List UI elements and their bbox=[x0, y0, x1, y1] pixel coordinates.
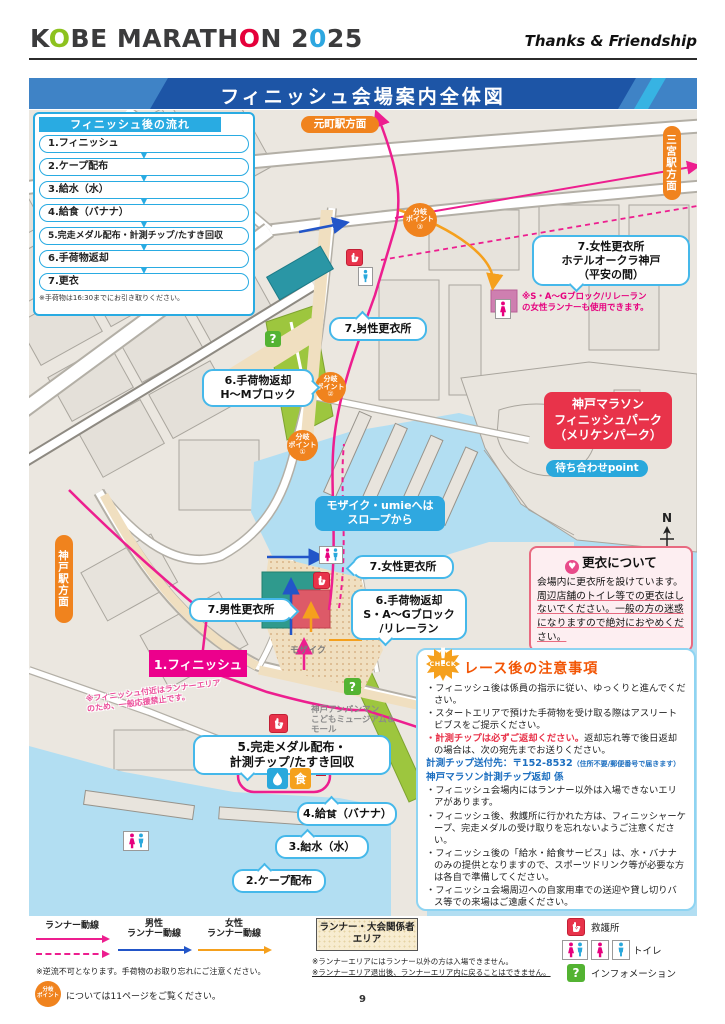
legend-male-route: 男性 ランナー動線 bbox=[118, 919, 190, 951]
anpanman-label: 神戸アンパンマン こどもミュージアム＆ モール bbox=[311, 705, 413, 736]
flow-step: 5.完走メダル配布・計測チップ/たすき回収 bbox=[39, 227, 249, 245]
runner-area-note1: ※ランナーエリアにはランナー以外の方は入場できません。 bbox=[312, 956, 562, 967]
logo-ring-blue: 0 bbox=[309, 24, 327, 53]
flow-panel-title: フィニッシュ後の流れ bbox=[39, 117, 221, 132]
legend-label: 救護所 bbox=[591, 920, 620, 934]
note-item: ・スタートエリアで預けた手荷物を受け取る際はアスリートビブスをご提示ください。 bbox=[426, 708, 686, 732]
callout-food: 4.給食（バナナ） bbox=[297, 802, 397, 826]
direction-label-kobe-station: 神戸駅方面 bbox=[55, 535, 73, 623]
page-number: 9 bbox=[0, 994, 725, 1005]
toilet-icon-male bbox=[358, 267, 373, 286]
meeting-point-label: 待ち合わせpoint bbox=[546, 460, 648, 477]
callout-baggage-hm: 6.手荷物返却 H～Mブロック bbox=[202, 369, 314, 407]
event-tagline: Thanks & Friendship bbox=[525, 32, 697, 50]
branch-point-label: 分岐 ポイント bbox=[289, 434, 317, 449]
branch-point-number: ① bbox=[299, 449, 305, 456]
information-icon: ? bbox=[344, 678, 361, 695]
direction-label-sannomiya: 三宮駅方面 bbox=[663, 126, 681, 200]
kobe-marathon-logo: KOBE MARATHON 2025 bbox=[30, 24, 363, 53]
note-item-red: ・計測チップは必ずご返却ください。 bbox=[426, 733, 584, 744]
hotel-note: ※S・A～Gブロック/リレーラン の女性ランナーも使用できます。 bbox=[522, 292, 698, 315]
post-race-notes-panel: ! CHECK レース後の注意事項 ・フィニッシュ後は係員の指示に従い、ゆっくり… bbox=[416, 648, 696, 911]
legend-label: 女性 ランナー動線 bbox=[198, 919, 270, 940]
logo-part: N 2 bbox=[260, 24, 309, 53]
direction-label-motomachi: 元町駅方面 bbox=[301, 116, 379, 133]
first-aid-icon bbox=[567, 918, 585, 936]
toilet-icon-pair bbox=[562, 940, 588, 960]
mosaic-umie-note: モザイク・umieへは スロープから bbox=[315, 496, 445, 531]
logo-part: BE MARATH bbox=[71, 24, 239, 53]
runner-area-note2: ※ランナーエリア退出後、ランナーエリア内に戻ることはできません。 bbox=[312, 967, 562, 978]
first-aid-icon bbox=[313, 572, 330, 589]
section-title-banner: フィニッシュ会場案内全体図 bbox=[29, 78, 697, 109]
changing-info-body-underlined: 周辺店舗のトイレ等での更衣はしないでください。一般の方の迷惑になりますので絶対に… bbox=[537, 591, 684, 643]
page-title: フィニッシュ会場案内全体図 bbox=[29, 82, 697, 109]
finish-park-label: 神戸マラソン フィニッシュパーク （メリケンパーク） bbox=[544, 392, 672, 449]
male-route-arrow bbox=[118, 949, 190, 951]
runner-route-arrow bbox=[36, 938, 108, 940]
guidebook-page: KOBE MARATHON 2025 Thanks & Friendship フ… bbox=[0, 0, 725, 1024]
food-station-icon: 食 bbox=[290, 768, 311, 789]
callout-cape: 2.ケープ配布 bbox=[232, 869, 326, 893]
callout-male-change-top: 7.男性更衣所 bbox=[329, 317, 427, 341]
first-aid-icon bbox=[269, 714, 288, 733]
changing-info-body: 会場内に更衣所を設けています。 bbox=[537, 577, 683, 588]
branch-point-1: 分岐 ポイント ① bbox=[287, 430, 318, 461]
chip-return-address-note: （住所不要/郵便番号で届きます） bbox=[573, 760, 681, 768]
female-route-arrow bbox=[198, 949, 270, 951]
changing-info-panel: ♥更衣について 会場内に更衣所を設けています。周辺店舗のトイレ等での更衣はしない… bbox=[529, 546, 693, 652]
toilet-icon-pair bbox=[319, 546, 343, 564]
legend-aid-station: 救護所 bbox=[567, 918, 620, 936]
flow-panel: フィニッシュ後の流れ 1.フィニッシュ ▼ 2.ケープ配布 ▼ 3.給水（水） … bbox=[33, 112, 255, 316]
runner-area-legend-box: ランナー・大会関係者 エリア bbox=[316, 918, 418, 951]
flow-step: 7.更衣 bbox=[39, 273, 249, 291]
flow-step: 2.ケープ配布 bbox=[39, 158, 249, 176]
finish-label: 1.フィニッシュ bbox=[149, 650, 247, 677]
toilet-icon-pair bbox=[123, 831, 149, 851]
toilet-icon-male bbox=[612, 940, 630, 960]
flow-step: 4.給食（バナナ） bbox=[39, 204, 249, 222]
legend-label: トイレ bbox=[633, 943, 662, 957]
reverse-flow-note: ※逆流不可となります。手荷物のお取り忘れにご注意ください。 bbox=[36, 966, 336, 977]
note-item: ・フィニッシュ後は係員の指示に従い、ゆっくりと進んでください。 bbox=[426, 683, 686, 707]
page-header: KOBE MARATHON 2025 Thanks & Friendship bbox=[29, 24, 697, 60]
flow-note: ※手荷物は16:30までにお引き取りください。 bbox=[39, 293, 249, 303]
branch-point-label: 分岐 ポイント bbox=[317, 376, 345, 391]
toilet-icon-female bbox=[495, 299, 511, 319]
legend-label: 男性 ランナー動線 bbox=[118, 919, 190, 940]
branch-point-label: 分岐 ポイント bbox=[406, 209, 434, 224]
first-aid-icon bbox=[346, 249, 363, 266]
toilet-icon-female bbox=[591, 940, 609, 960]
legend-toilet: トイレ bbox=[562, 940, 662, 960]
note-item: ・フィニッシュ後の「給水・給食サービス」は、水・バナナのみの提供となりますので、… bbox=[426, 848, 686, 884]
callout-water: 3.給水（水） bbox=[275, 835, 369, 859]
logo-ring-green: O bbox=[49, 24, 71, 53]
chip-return-address: 計測チップ送付先：〒152-8532（住所不要/郵便番号で届きます） bbox=[426, 758, 686, 770]
legend-female-route: 女性 ランナー動線 bbox=[198, 919, 270, 951]
legend-runner-route: ランナー動線 bbox=[36, 921, 108, 955]
logo-part: K bbox=[30, 24, 49, 53]
information-icon: ? bbox=[567, 964, 585, 982]
notes-title: レース後の注意事項 bbox=[464, 658, 598, 678]
note-item: ・計測チップは必ずご返却ください。返却忘れ等で後日返却の場合は、次の宛先までお送… bbox=[426, 733, 686, 757]
note-item: ・フィニッシュ後、救護所に行かれた方は、フィニッシャーケープ、完走メダルの受け取… bbox=[426, 811, 686, 847]
branch-point-number: ② bbox=[327, 391, 333, 398]
flow-step: 1.フィニッシュ bbox=[39, 135, 249, 153]
legend-label: インフォメーション bbox=[591, 966, 676, 980]
north-arrow: N bbox=[652, 512, 682, 550]
heart-icon: ♥ bbox=[565, 560, 579, 574]
mosaic-label: モザイク bbox=[290, 643, 326, 656]
callout-female-change-hotel: 7.女性更衣所 ホテルオークラ神戸 （平安の間） bbox=[532, 235, 690, 286]
callout-female-change: 7.女性更衣所 bbox=[352, 555, 454, 579]
check-icon: ! CHECK bbox=[426, 647, 460, 681]
branch-point-number: ③ bbox=[417, 224, 423, 231]
legend-information: ? インフォメーション bbox=[567, 964, 676, 982]
callout-male-change: 7.男性更衣所 bbox=[189, 598, 293, 622]
water-station-icon bbox=[267, 768, 288, 789]
note-item: ・フィニッシュ会場内にはランナー以外は入場できないエリアがあります。 bbox=[426, 785, 686, 809]
callout-baggage-sag: 6.手荷物返却 S・A～Gブロック /リレーラン bbox=[351, 589, 467, 640]
information-icon: ? bbox=[265, 331, 281, 347]
north-label: N bbox=[662, 512, 672, 524]
logo-part: 25 bbox=[327, 24, 363, 53]
note-item: ・フィニッシュ会場周辺への自家用車での送迎や貸し切りバス等での来場はご遠慮くださ… bbox=[426, 885, 686, 909]
flow-step: 3.給水（水） bbox=[39, 181, 249, 199]
changing-info-title: ♥更衣について bbox=[537, 552, 685, 574]
branch-point-3: 分岐 ポイント ③ bbox=[403, 203, 437, 237]
runner-route-dashed-arrow bbox=[36, 953, 108, 955]
logo-ring-red: O bbox=[239, 24, 261, 53]
flow-step: 6.手荷物返却 bbox=[39, 250, 249, 268]
check-label: CHECK bbox=[426, 660, 460, 668]
chip-return-address2: 神戸マラソン計測チップ返却 係 bbox=[426, 772, 686, 784]
changing-info-title-text: 更衣について bbox=[582, 555, 657, 570]
legend-label: ランナー動線 bbox=[36, 921, 108, 931]
